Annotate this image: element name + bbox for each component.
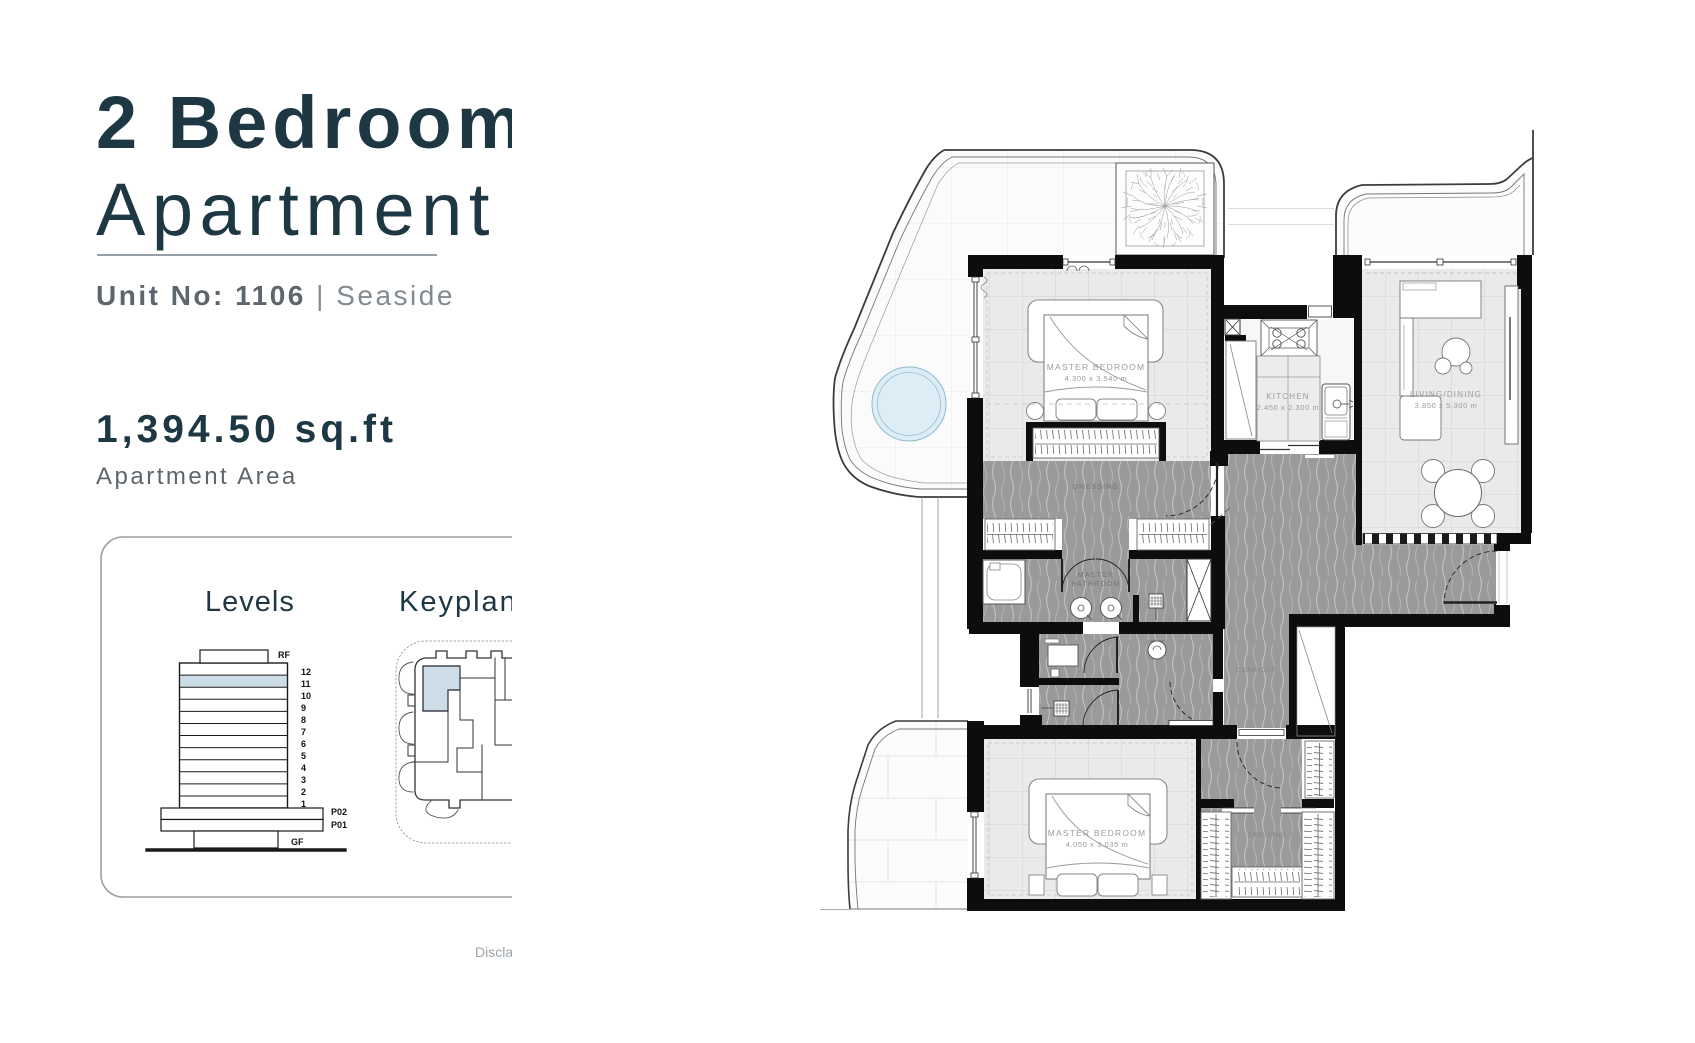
svg-text:KITCHEN: KITCHEN xyxy=(1266,392,1310,401)
svg-text:1: 1 xyxy=(301,799,306,809)
svg-text:6: 6 xyxy=(301,739,306,749)
svg-text:2: 2 xyxy=(301,787,306,797)
svg-text:MASTER: MASTER xyxy=(1078,572,1114,579)
svg-text:4.300 x 3.540 m: 4.300 x 3.540 m xyxy=(1065,374,1128,383)
svg-text:12: 12 xyxy=(301,667,311,677)
svg-text:3: 3 xyxy=(301,775,306,785)
svg-text:P01: P01 xyxy=(331,820,347,830)
svg-text:3.850 x 5.300 m: 3.850 x 5.300 m xyxy=(1415,401,1478,410)
svg-text:7: 7 xyxy=(301,727,306,737)
svg-text:P02: P02 xyxy=(331,807,347,817)
svg-text:BATHROOM: BATHROOM xyxy=(1071,581,1121,588)
svg-text:CORRIDOR: CORRIDOR xyxy=(1237,668,1278,674)
svg-text:4.050 x 3.035 m: 4.050 x 3.035 m xyxy=(1066,840,1129,849)
svg-text:4: 4 xyxy=(301,763,306,773)
svg-text:9: 9 xyxy=(301,703,306,713)
svg-text:10: 10 xyxy=(301,691,311,701)
svg-text:MASTER BEDROOM: MASTER BEDROOM xyxy=(1048,828,1147,838)
svg-text:RF: RF xyxy=(278,650,290,660)
svg-text:DRESSING: DRESSING xyxy=(1073,484,1119,491)
svg-text:DRESSING: DRESSING xyxy=(1247,833,1286,839)
svg-text:11: 11 xyxy=(301,679,311,689)
svg-text:2.450 x 2.300 m: 2.450 x 2.300 m xyxy=(1257,403,1320,412)
svg-text:LIVING/DINING: LIVING/DINING xyxy=(1410,390,1482,399)
svg-text:5: 5 xyxy=(301,751,306,761)
svg-text:MASTER BEDROOM: MASTER BEDROOM xyxy=(1047,362,1146,372)
svg-text:8: 8 xyxy=(301,715,306,725)
svg-text:GF: GF xyxy=(291,837,304,847)
